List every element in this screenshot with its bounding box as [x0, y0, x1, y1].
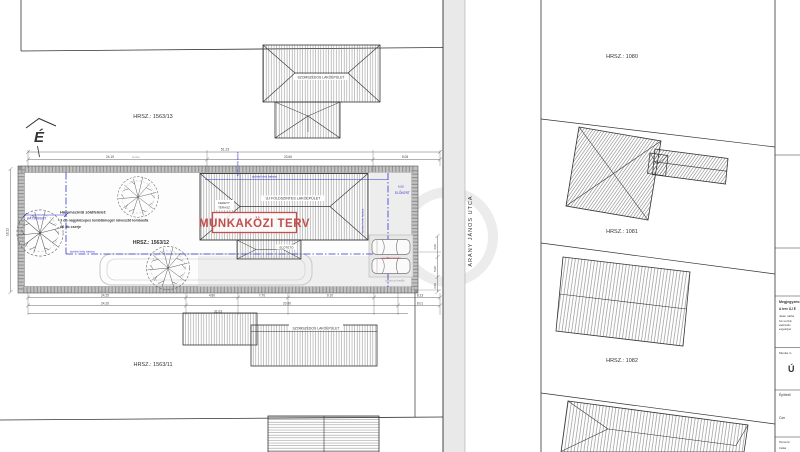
site-boundary-label-1: építési hely határa [252, 175, 277, 179]
tb-note-small3: engedélyez [779, 328, 792, 331]
dim-b1-3: 7.70 [259, 293, 265, 297]
dim-top-seg-1: 24.15 [106, 155, 114, 159]
dim-right-2: 5,00 [433, 266, 437, 272]
tb-note-small2: elektroniku [779, 324, 791, 327]
neighbor-top-label: SZOMSZÉDOS LAKÓÉPÜLET [298, 75, 345, 80]
dim-b2-1: 24.26 [101, 301, 109, 305]
dim-b2-3: 8.01 [417, 301, 423, 305]
neighbor-building-bottom [183, 313, 377, 366]
dim-b3-1: 31.03 [214, 309, 222, 313]
terrace-label-2: TERASZ [218, 206, 230, 210]
building-bottom-right [561, 401, 748, 452]
dim-top-seg-2: 23.66 [284, 155, 292, 159]
dim-right-1: 4,00 [433, 244, 437, 250]
neighbor-building-top [263, 45, 380, 138]
green-note-title: Háromszintű zöldfelület: [60, 210, 106, 215]
car-icon [372, 259, 410, 274]
site-plan-page: { "north": { "letter": "É" }, "street": … [0, 0, 800, 452]
site-boundary-label-v1: építési hely határa [361, 208, 365, 233]
tb-work-big: Ú [788, 363, 795, 374]
tb-note-small1: Terv és Dok [779, 320, 792, 323]
dim-b1-1: 24.25 [101, 293, 109, 297]
canopy-label: ELŐTETŐ [279, 245, 294, 250]
site-plan-drawing: É SZOMSZÉDOS LAKÓÉPÜ [0, 0, 800, 452]
building-1081 [566, 127, 728, 220]
parking-label-red: gépkocsi beálló [381, 256, 401, 260]
site-boundary-label-2: építési hely határa [70, 250, 95, 254]
dim-b2-2: 20.80 [283, 301, 291, 305]
green-note-line1: - 3 db nagyközepes lombtömeget növesztő … [58, 219, 149, 223]
green-note-line2: - 60 db cserje [58, 225, 81, 229]
tb-designer-small: Csikai [779, 446, 786, 450]
north-arrow: É [26, 119, 56, 158]
tb-work-label: Munka m [779, 351, 792, 355]
terrace-label-1: FEDETT [218, 201, 230, 205]
new-building-label: ÚJ FÖLDSZINTES LAKÓÉPÜLET [266, 196, 322, 201]
dim-b1-2: 4.80 [209, 293, 215, 297]
tb-designer-label: Tervező [779, 440, 790, 444]
front-depth-label: 6,00 [398, 185, 404, 189]
parcel-label-1080: HRSZ.: 1080 [606, 54, 638, 60]
dim-top-seg-3: 8.08 [402, 155, 408, 159]
hatsokert-label: HÁTSÓKERT [27, 216, 46, 221]
bottom-edge-building [268, 416, 379, 452]
parcel-label-1081: HRSZ.: 1081 [606, 229, 638, 235]
work-in-progress-stamp: MUNKAKÖZI TERV [199, 213, 310, 233]
dim-top-total: 51.23 [221, 148, 230, 152]
tb-note-line1: A terv ÚJ É [779, 306, 796, 311]
tb-note-line2: Jelen vázla [779, 314, 794, 318]
tb-client-label: Építtető [779, 392, 791, 397]
parking-label-gray: gépkocsi beálló [385, 279, 405, 283]
neighbor-bottom-label: SZOMSZÉDOS LAKÓÉPÜLET [293, 326, 340, 331]
parcel-label-1563-12: HRSZ.: 1563/12 [133, 240, 169, 246]
parcel-label-1082: HRSZ.: 1082 [606, 358, 638, 364]
tb-note-title: Megjegyzés: [779, 300, 800, 304]
tb-address-label: Cím [779, 416, 785, 420]
street-name: ARANY JÁNOS UTCA [467, 195, 474, 266]
parcel-label-1563-11: HRSZ.: 1563/11 [133, 362, 172, 368]
north-label: É [34, 129, 45, 146]
title-block [775, 0, 800, 452]
elokert-label: ELŐKERT [395, 190, 410, 195]
car-icon [372, 240, 410, 255]
dim-b1-5: 8.23 [417, 293, 423, 297]
dim-top-note: kerítés [132, 155, 140, 159]
stamp-text: MUNKAKÖZI TERV [199, 217, 310, 230]
parcel-label-1563-13: HRSZ.: 1563/13 [133, 114, 172, 120]
site-boundary-label-v2: építési hely határa [236, 151, 240, 176]
dim-right-3: 3,50 [433, 283, 437, 289]
building-1082 [556, 257, 690, 346]
dim-b1-4: 9.10 [327, 293, 333, 297]
dim-left-height: 16.12 [6, 228, 10, 236]
